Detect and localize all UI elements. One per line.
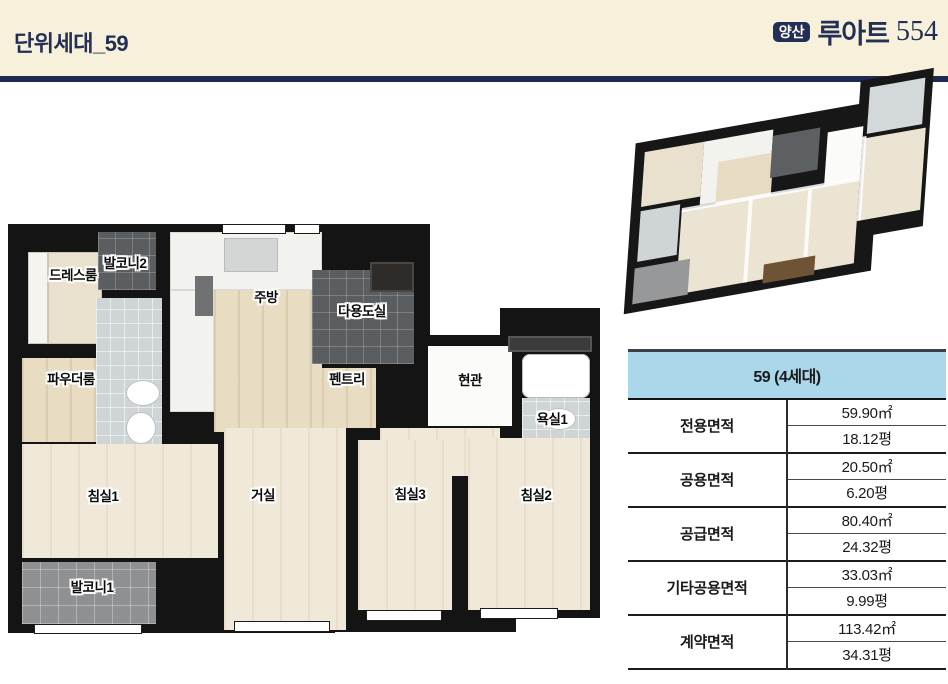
area-value-pyeong: 6.20평 (787, 480, 946, 507)
toilet (126, 412, 156, 444)
area-value-sqm: 20.50㎡ (787, 453, 946, 480)
area-table: 59 (4세대) 전용면적 59.90㎡ 18.12평 공용면적 20.50㎡ … (628, 349, 946, 670)
window (480, 608, 558, 619)
floorplan-3d (600, 86, 948, 338)
area-row-label: 전용면적 (628, 399, 787, 453)
bedroom3-floor (358, 440, 452, 610)
floorplan-3d-render (623, 83, 929, 322)
room-label-bedroom2: 침실2 (521, 484, 552, 504)
page-title: 단위세대_59 (14, 26, 128, 58)
toilet (126, 380, 160, 406)
area-value-sqm: 59.90㎡ (787, 399, 946, 426)
window (366, 610, 442, 621)
area-row-label: 공용면적 (628, 453, 787, 507)
bathtub (522, 354, 590, 398)
bath1-wardrobe (508, 336, 592, 352)
page-header: 단위세대_59 양산 루아트 554 (0, 0, 948, 82)
dressroom-closet (28, 252, 48, 344)
bedroom1-floor (22, 444, 218, 558)
room-label-balcony1: 발코니1 (71, 576, 114, 596)
room-label-entrance: 현관 (458, 369, 482, 389)
floorplan-2d: 발코니2 드레스룸 주방 다용도실 파우더룸 펜트리 현관 욕실1 침실1 거실… (8, 212, 600, 648)
kitchen-island (195, 276, 213, 316)
brand-logo: 양산 루아트 554 (773, 12, 938, 51)
brand-badge: 양산 (773, 22, 811, 42)
area-row-label: 계약면적 (628, 615, 787, 669)
window (294, 224, 320, 234)
room-label-bathroom1: 욕실1 (537, 408, 568, 428)
room-label-dressroom: 드레스룸 (49, 264, 97, 284)
area-row-label: 공급면적 (628, 507, 787, 561)
brand-number: 554 (896, 16, 938, 48)
livingroom-floor (224, 428, 346, 630)
brand-name: 루아트 (817, 12, 889, 51)
room-label-bedroom1: 침실1 (88, 485, 119, 505)
area-value-sqm: 113.42㎡ (787, 615, 946, 642)
room-label-living: 거실 (251, 484, 275, 504)
area-value-pyeong: 9.99평 (787, 588, 946, 615)
area-value-pyeong: 34.31평 (787, 642, 946, 669)
room-label-powder: 파우더룸 (47, 368, 95, 388)
room-label-utility: 다용도실 (338, 300, 386, 320)
window (234, 621, 330, 632)
room-label-kitchen: 주방 (254, 286, 278, 306)
area-value-pyeong: 24.32평 (787, 534, 946, 561)
window (34, 624, 142, 634)
kitchen-floor (214, 290, 322, 432)
area-value-pyeong: 18.12평 (787, 426, 946, 453)
area-value-sqm: 80.40㎡ (787, 507, 946, 534)
area-row-label: 기타공용면적 (628, 561, 787, 615)
kitchen-sink (224, 238, 278, 272)
room-label-bedroom3: 침실3 (395, 483, 426, 503)
room-label-pantry: 펜트리 (329, 368, 365, 388)
area-table-header: 59 (4세대) (628, 351, 946, 399)
window (222, 224, 286, 234)
area-value-sqm: 33.03㎡ (787, 561, 946, 588)
bedroom2-floor (468, 438, 590, 610)
washer (370, 262, 414, 292)
room-label-balcony2: 발코니2 (104, 252, 147, 272)
